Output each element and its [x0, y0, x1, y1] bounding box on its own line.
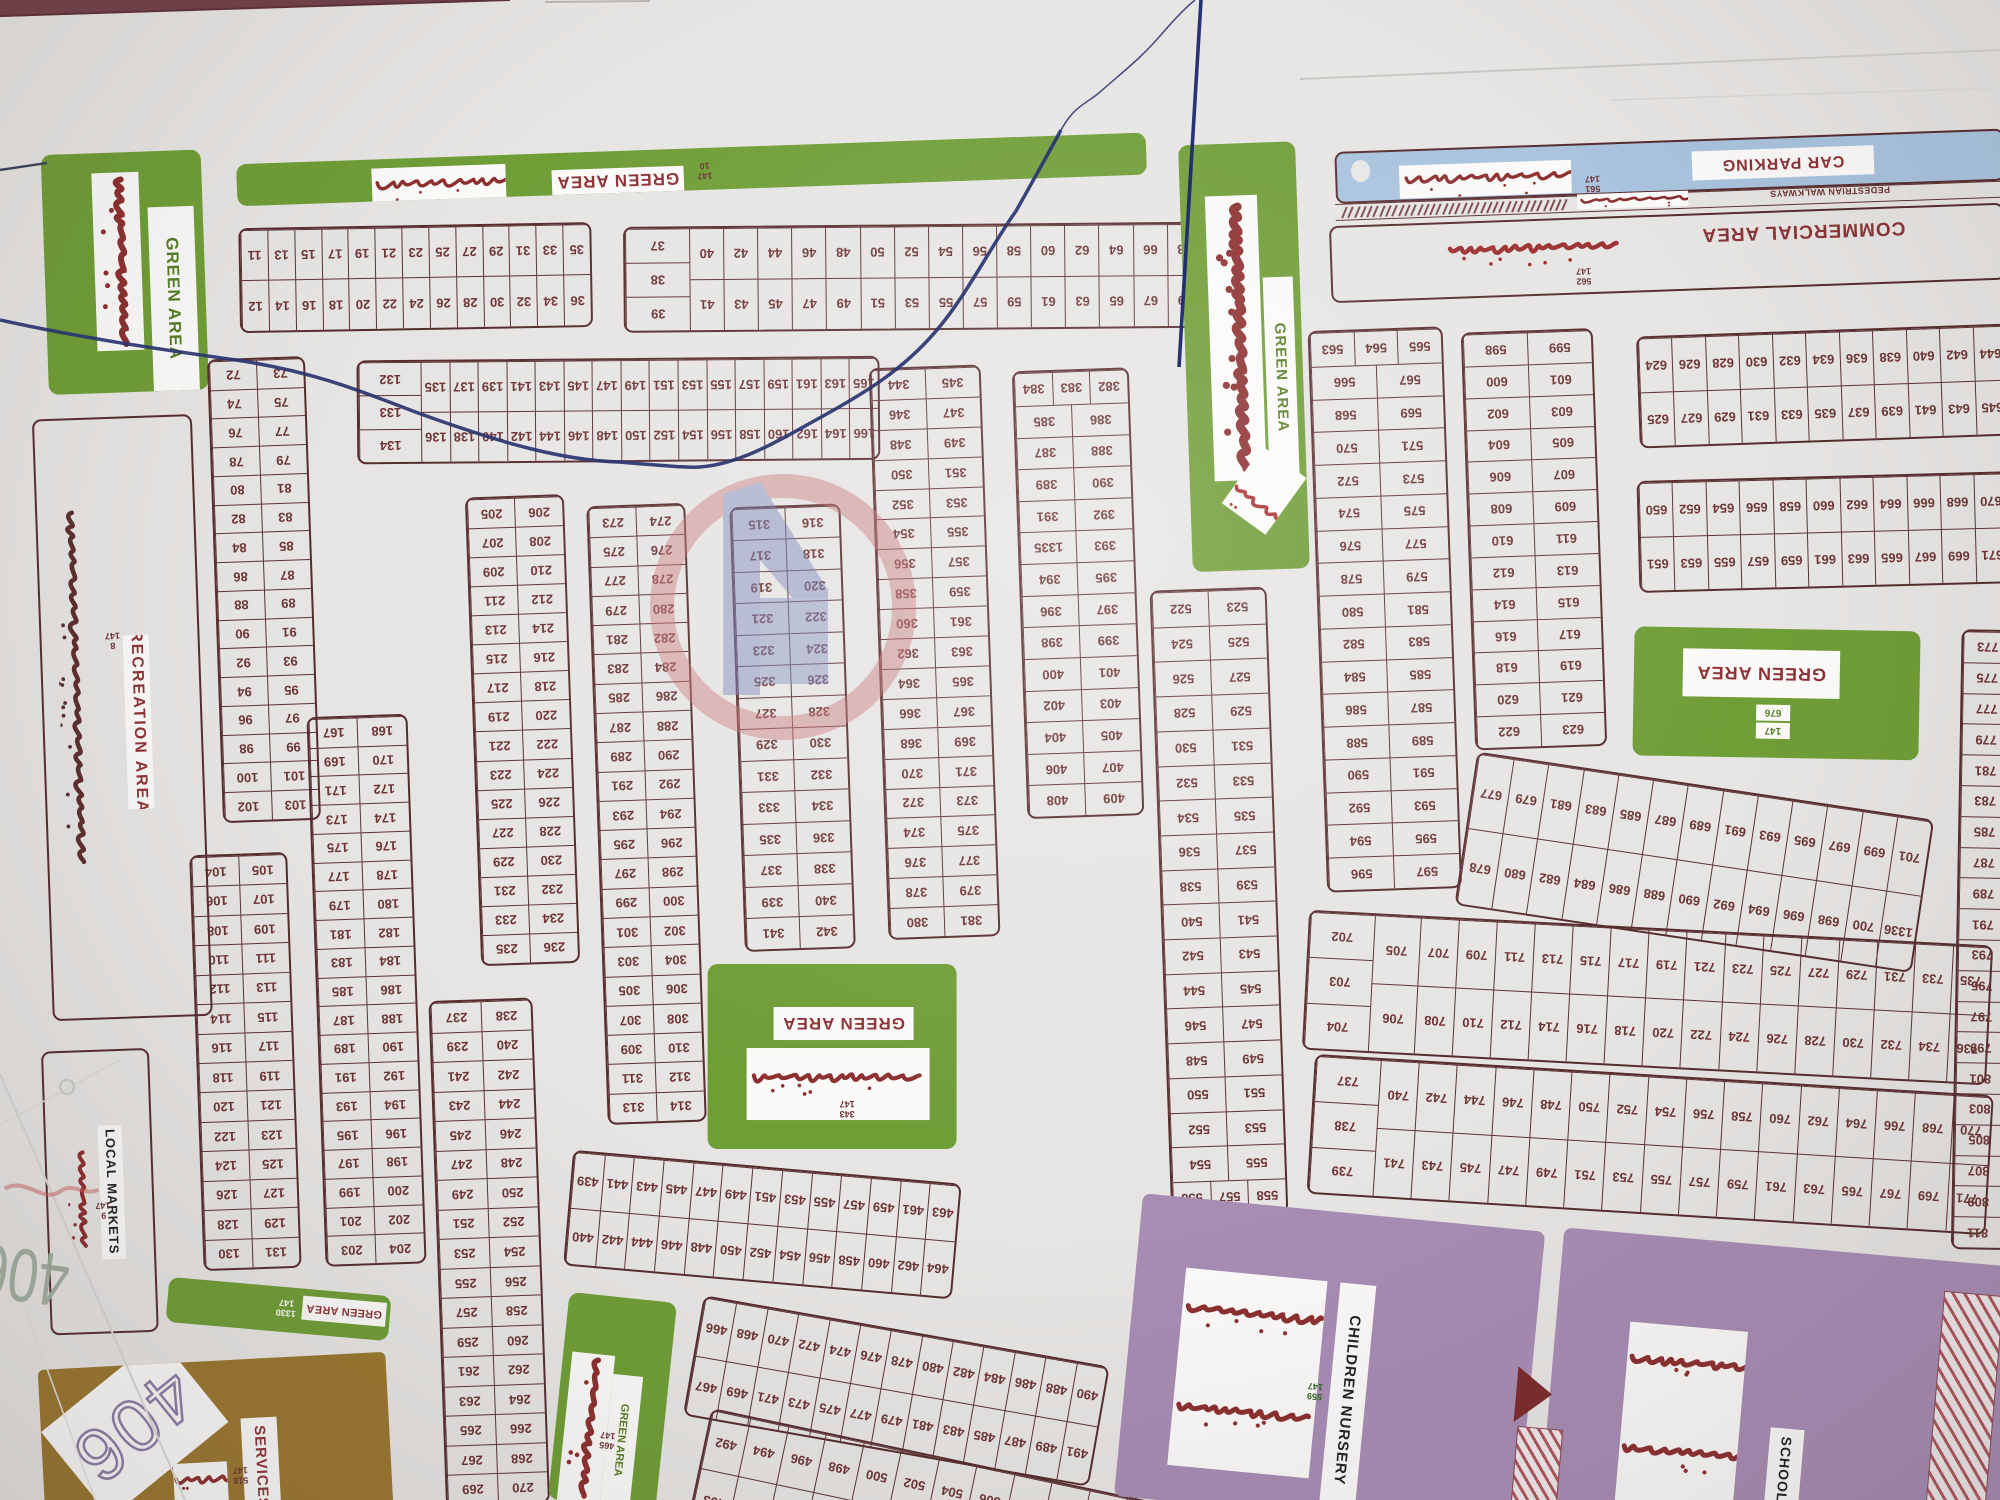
svg-text:406: 406	[0, 1227, 74, 1324]
